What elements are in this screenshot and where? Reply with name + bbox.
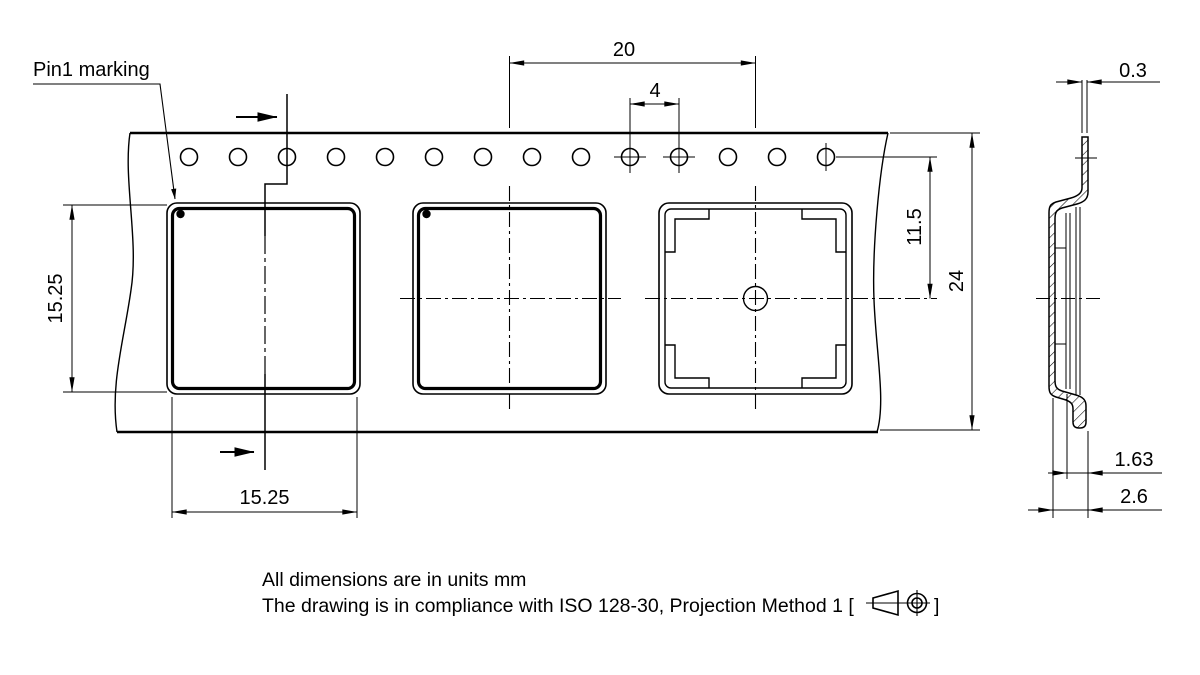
- pocket-3: [645, 186, 937, 412]
- sprocket-hole: [769, 149, 786, 166]
- dim-tape-width-value: 24: [946, 270, 968, 292]
- dim-extension-lines: [63, 205, 167, 392]
- dim-pocket-pitch-value: 20: [613, 39, 635, 61]
- sprocket-hole: [573, 149, 590, 166]
- carrier-tape-drawing-page: Pin1 marking 20 4 15.25 15.25 11.5 24: [0, 0, 1200, 675]
- dim-pocket-width-value: 15.25: [239, 487, 289, 509]
- pin1-dot-1: [176, 210, 184, 218]
- tape-right-break-line: [874, 133, 888, 432]
- component-1-outline: [173, 209, 355, 389]
- side-view: 0.3 1.63 2.6: [1028, 60, 1162, 518]
- pocket-corner-ledge-br: [802, 345, 846, 388]
- projection-symbol-crosshair: [904, 590, 930, 616]
- projection-method-symbol: [866, 590, 930, 616]
- sprocket-hole: [475, 149, 492, 166]
- sprocket-hole: [426, 149, 443, 166]
- dim-extension-lines: [1082, 80, 1087, 133]
- tape-left-break-line: [115, 133, 133, 432]
- pocket-1-outline: [167, 203, 360, 394]
- sprocket-holes: [181, 149, 835, 166]
- dim-hole-to-pocket-center: 11.5: [836, 157, 937, 299]
- pocket-corner-ledge-tr: [802, 209, 846, 252]
- sprocket-hole: [328, 149, 345, 166]
- hole-center-mark: [663, 141, 695, 173]
- pocket-corner-ledge-tl: [665, 209, 709, 252]
- pin1-leader-line: [33, 84, 175, 199]
- pocket-2: [400, 186, 621, 411]
- hole-center-mark: [614, 141, 646, 173]
- side-ledge-edges: [1066, 213, 1070, 389]
- note-line-2-closing-bracket: ]: [934, 595, 939, 617]
- dim-pocket-height-value: 15.25: [45, 273, 67, 323]
- dim-tape-thickness: 0.3: [1056, 60, 1160, 133]
- pin1-dot-2: [422, 210, 430, 218]
- dim-pocket-height: 15.25: [45, 205, 167, 392]
- carrier-tape-drawing: Pin1 marking 20 4 15.25 15.25 11.5 24: [0, 0, 1200, 675]
- sprocket-hole: [524, 149, 541, 166]
- pin1-label: Pin1 marking: [33, 59, 150, 81]
- dim-tape-thickness-value: 0.3: [1119, 60, 1147, 82]
- side-pocket-rim-edges: [1076, 207, 1080, 395]
- dim-pocket-inner-depth: 1.63: [1048, 449, 1162, 473]
- notes: All dimensions are in units mm The drawi…: [262, 569, 939, 617]
- section-cut-line: [220, 94, 287, 470]
- dim-extension-lines: [630, 98, 679, 142]
- dim-hole-to-pocket-center-value: 11.5: [904, 208, 926, 245]
- note-line-1: All dimensions are in units mm: [262, 569, 526, 591]
- pocket-corner-ledge-bl: [665, 345, 709, 388]
- dim-sprocket-pitch-value: 4: [649, 80, 660, 102]
- sprocket-hole: [377, 149, 394, 166]
- sprocket-hole: [720, 149, 737, 166]
- dim-pocket-total-depth-value: 2.6: [1120, 486, 1148, 508]
- note-line-2: The drawing is in compliance with ISO 12…: [262, 595, 854, 617]
- pin1-callout: Pin1 marking: [33, 59, 175, 199]
- dim-pocket-pitch: 20: [510, 39, 756, 128]
- dim-pocket-inner-depth-value: 1.63: [1115, 449, 1154, 471]
- side-profile-section: [1049, 137, 1088, 428]
- side-ledge-steps: [1055, 248, 1066, 344]
- sprocket-hole: [181, 149, 198, 166]
- dim-pocket-total-depth: 2.6: [1028, 486, 1162, 510]
- sprocket-hole: [230, 149, 247, 166]
- dim-extension-lines: [510, 56, 756, 128]
- pocket-1: [167, 203, 360, 394]
